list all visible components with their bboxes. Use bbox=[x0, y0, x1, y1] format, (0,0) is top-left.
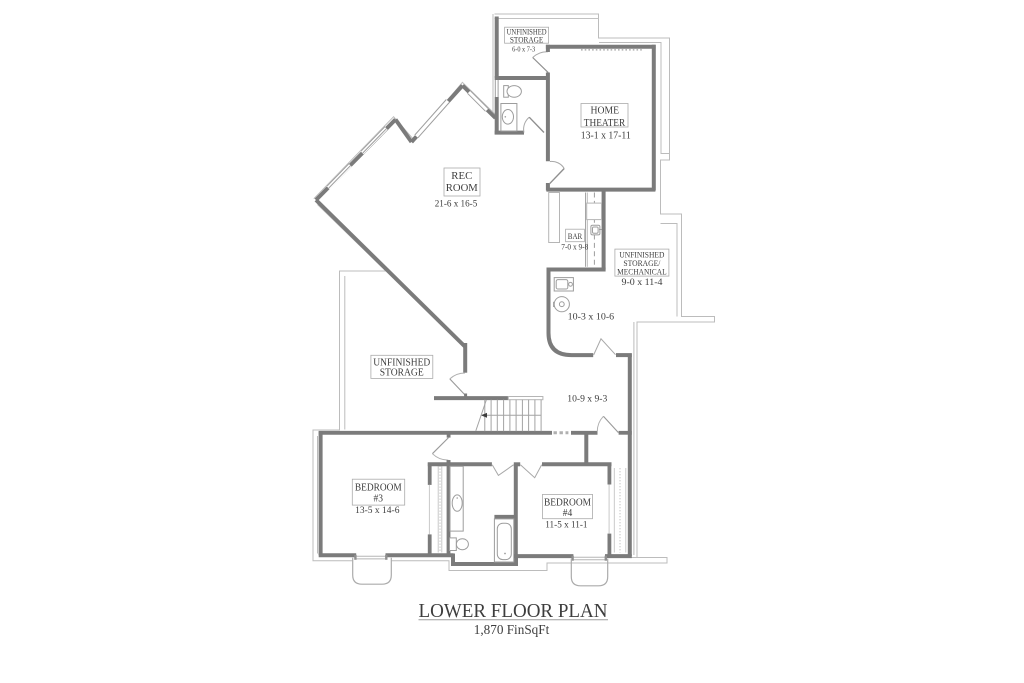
svg-text:MECHANICAL: MECHANICAL bbox=[617, 267, 667, 276]
svg-text:21-6 x 16-5: 21-6 x 16-5 bbox=[435, 199, 478, 210]
svg-text:1,870 FinSqFt: 1,870 FinSqFt bbox=[474, 622, 550, 637]
svg-text:STORAGE: STORAGE bbox=[510, 35, 544, 44]
svg-text:#4: #4 bbox=[563, 507, 573, 519]
svg-text:ROOM: ROOM bbox=[446, 182, 478, 194]
svg-text:LOWER FLOOR PLAN: LOWER FLOOR PLAN bbox=[419, 601, 608, 622]
svg-text:13-5 x 14-6: 13-5 x 14-6 bbox=[355, 506, 400, 516]
svg-text:13-1 x 17-11: 13-1 x 17-11 bbox=[581, 130, 631, 141]
svg-text:7-0 x 9-8: 7-0 x 9-8 bbox=[561, 242, 588, 251]
svg-text:6-0 x 7-3: 6-0 x 7-3 bbox=[512, 45, 535, 54]
svg-text:10-9 x 9-3: 10-9 x 9-3 bbox=[567, 394, 607, 405]
svg-text:10-3 x 10-6: 10-3 x 10-6 bbox=[568, 311, 615, 322]
svg-text:REC: REC bbox=[451, 170, 472, 182]
svg-text:HOME: HOME bbox=[591, 105, 620, 117]
svg-text:BAR: BAR bbox=[568, 231, 583, 241]
svg-text:11-5 x 11-1: 11-5 x 11-1 bbox=[545, 521, 587, 531]
svg-text:STORAGE: STORAGE bbox=[380, 367, 424, 378]
svg-text:9-0 x 11-4: 9-0 x 11-4 bbox=[622, 278, 663, 288]
svg-text:THEATER: THEATER bbox=[584, 117, 626, 129]
svg-text:#3: #3 bbox=[374, 493, 384, 505]
